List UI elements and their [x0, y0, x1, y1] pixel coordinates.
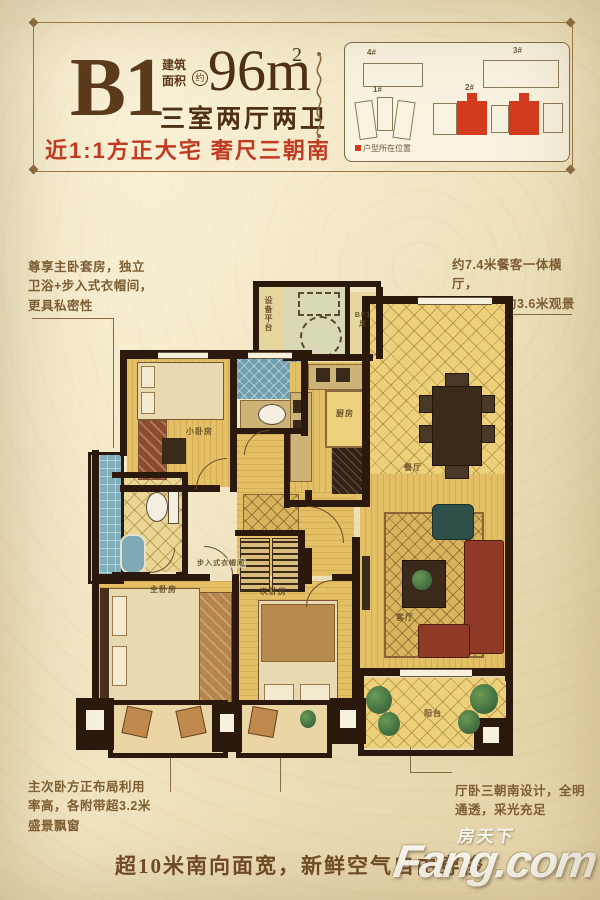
sink [258, 404, 286, 425]
wall [352, 537, 360, 720]
window [248, 352, 292, 359]
wall [230, 350, 237, 492]
room-label-bedroom-small: 小卧房 [186, 426, 213, 437]
wall [253, 281, 381, 287]
closet-shelving [272, 538, 300, 592]
wall [298, 574, 308, 581]
pillow [141, 366, 155, 388]
room-label-living: 客厅 [396, 612, 414, 623]
wall [283, 354, 373, 361]
wall [305, 490, 312, 506]
wall [92, 450, 99, 720]
dining-chair [419, 425, 433, 443]
armchair [432, 504, 474, 540]
dining-chair [445, 465, 469, 479]
wall [284, 430, 290, 508]
room-label-closet: 步入式衣帽间 [196, 558, 246, 568]
bathtub [120, 534, 146, 574]
wall [235, 530, 305, 536]
balcony-plant-icon [470, 684, 498, 714]
pillow [300, 684, 330, 701]
headboard [100, 588, 109, 700]
window [158, 352, 208, 359]
stove-burner-icon [336, 368, 350, 382]
wall [182, 472, 188, 578]
pillow [112, 646, 127, 686]
wall [345, 287, 350, 357]
watermark: 房天下 Fang.com [392, 820, 600, 900]
wall [505, 296, 513, 681]
column-core [86, 710, 104, 730]
wall [253, 281, 259, 356]
wall [176, 572, 188, 578]
wall [362, 304, 370, 504]
sofa [464, 540, 504, 654]
column-core [220, 714, 234, 732]
blanket [261, 604, 335, 662]
dining-table [432, 386, 482, 466]
balcony-plant-icon [366, 686, 392, 714]
sofa-chaise [418, 624, 470, 658]
wall [112, 572, 150, 578]
room-label-dining: 餐厅 [404, 462, 422, 473]
room-label-balcony: 阳台 [424, 708, 442, 719]
wall [232, 574, 239, 720]
pillow [141, 392, 155, 414]
wall [298, 530, 305, 592]
column-core [340, 710, 356, 728]
balcony-slider [400, 669, 472, 677]
watermark-en: Fang.com [390, 834, 599, 888]
wall [284, 500, 370, 507]
room-label-kitchen: 厨房 [336, 408, 354, 419]
tv-console [362, 556, 370, 610]
dining-chair [481, 425, 495, 443]
room-label-equipment: 设备平台 [263, 296, 274, 332]
wall [92, 574, 210, 581]
toilet [146, 492, 168, 522]
wall [112, 472, 188, 478]
column-core [483, 727, 499, 743]
pillow [264, 684, 294, 701]
floor-plan: 设备平台 BF1风 小卧房 厨房 餐厅 客厅 主卧房 次卧房 步入式衣帽间 阳台 [0, 0, 600, 900]
dining-chair [481, 395, 495, 413]
balcony-plant-icon [378, 712, 400, 736]
room-label-master: 主卧房 [150, 584, 177, 595]
desk [162, 438, 186, 464]
balcony-plant-icon [458, 710, 480, 734]
wall [120, 350, 127, 456]
flyer-page: { "header": { "unit_code": "B1", "area_l… [0, 0, 600, 900]
window [418, 297, 492, 305]
bay-armchair [248, 706, 278, 738]
room-label-shaft: BF1风 [351, 312, 375, 329]
dining-chair [419, 395, 433, 413]
table-plant-icon [412, 570, 432, 590]
room-label-bedroom-second: 次卧房 [260, 586, 287, 597]
dining-chair [445, 373, 469, 387]
wall [237, 428, 307, 434]
wall [301, 350, 308, 436]
bay-armchair [175, 706, 206, 739]
washing-machine [298, 292, 340, 316]
pillow [112, 596, 127, 636]
stove-burner-icon [316, 368, 330, 382]
plant-icon [300, 710, 316, 728]
toilet-tank [168, 488, 179, 524]
